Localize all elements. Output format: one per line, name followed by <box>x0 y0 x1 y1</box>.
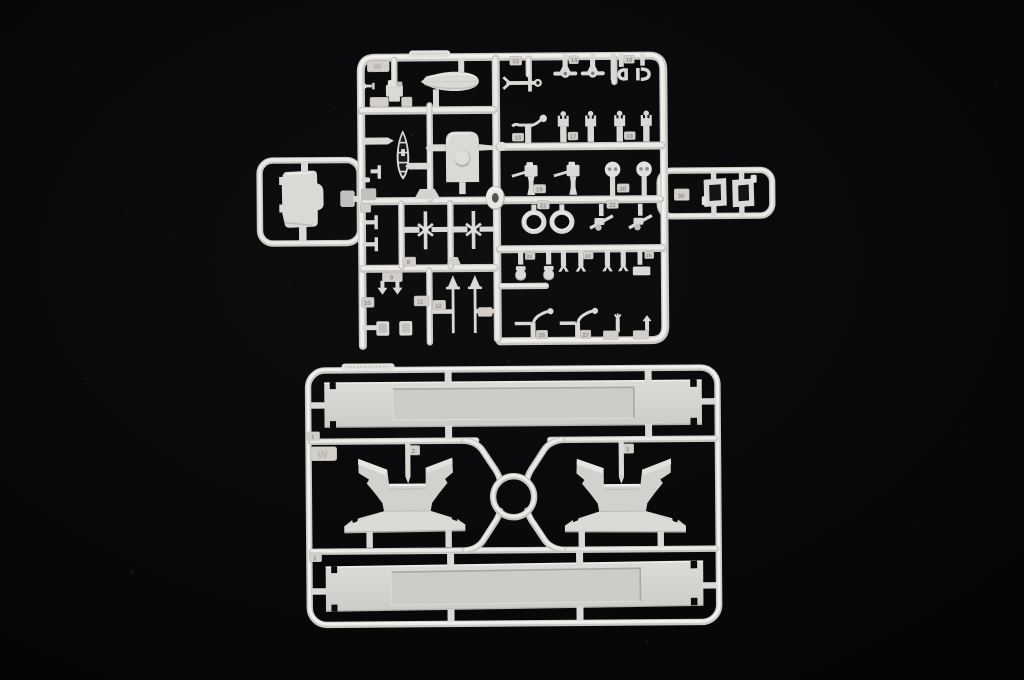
svg-text:W: W <box>317 449 328 461</box>
svg-text:18: 18 <box>626 134 633 140</box>
svg-text:12: 12 <box>435 304 442 310</box>
svg-text:17: 17 <box>570 135 577 141</box>
svg-text:22: 22 <box>609 203 616 209</box>
svg-text:21: 21 <box>540 203 547 209</box>
svg-text:15: 15 <box>515 136 522 142</box>
svg-text:11: 11 <box>417 299 424 305</box>
svg-text:24: 24 <box>585 254 591 260</box>
svg-text:25: 25 <box>646 253 652 259</box>
svg-text:27: 27 <box>582 333 589 339</box>
svg-text:20: 20 <box>619 187 626 193</box>
svg-text:26: 26 <box>538 333 545 339</box>
svg-text:14: 14 <box>571 58 578 64</box>
svg-text:10: 10 <box>364 301 371 307</box>
svg-text:16: 16 <box>626 58 633 64</box>
svg-text:30: 30 <box>678 194 685 200</box>
svg-text:13: 13 <box>512 59 519 65</box>
svg-text:W: W <box>374 62 382 71</box>
svg-text:23: 23 <box>527 254 533 260</box>
svg-text:19: 19 <box>536 187 543 193</box>
